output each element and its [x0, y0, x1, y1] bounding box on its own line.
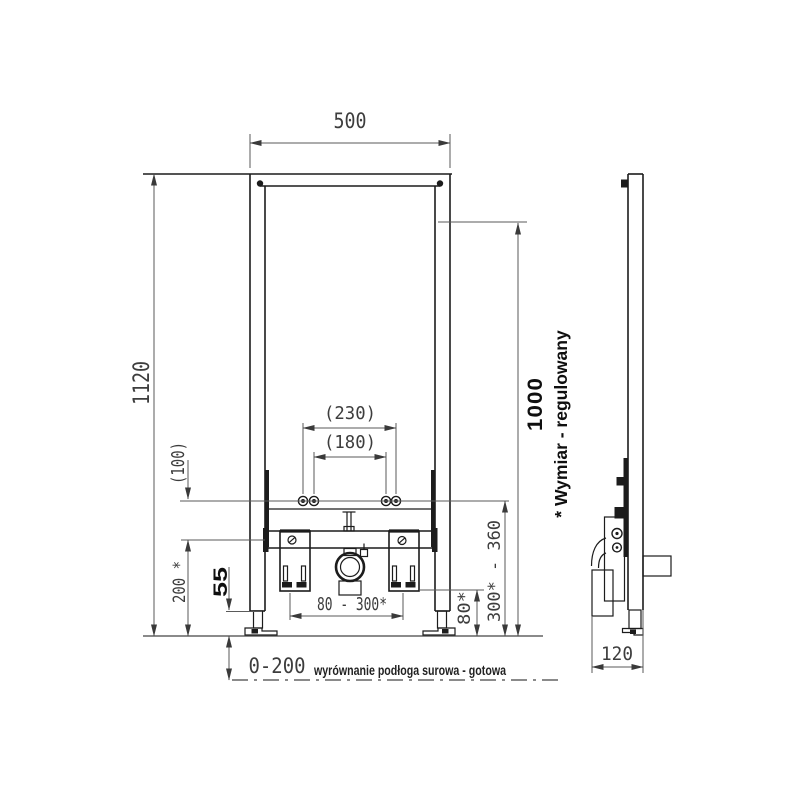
bracket-slot	[284, 566, 288, 581]
bidet-bracket-left	[280, 531, 310, 591]
hole-hatch	[399, 538, 405, 544]
side-foot-bolt	[630, 630, 636, 635]
dim-label-120: 120	[601, 643, 633, 665]
drain-outlet	[592, 570, 613, 616]
crossbar-assembly	[263, 512, 438, 552]
center-adjuster-rod	[343, 512, 356, 531]
dim-label-55: 55	[211, 566, 232, 597]
left-foot	[245, 611, 277, 635]
dim-label-200: 200 *	[170, 561, 189, 603]
technical-drawing-page: 500 1120 (230) (180) (100) 200 *	[0, 0, 800, 800]
left-foot-tube	[254, 611, 263, 628]
dim-label-100: (100)	[168, 442, 189, 484]
top-fixing-bolt-right	[437, 180, 443, 186]
bracket-slot	[393, 566, 397, 581]
side-plate-bolt-upper	[617, 477, 624, 486]
crossbar-hole-right	[398, 537, 406, 545]
clamp-bolt	[361, 550, 368, 557]
dim-height-1120: 1120	[130, 174, 155, 636]
adjustable-dimension-note: * Wymiar - regulowany	[551, 330, 571, 518]
dim-label-180: (180)	[324, 432, 376, 453]
left-foot-plate	[245, 628, 277, 635]
bracket-slot	[302, 566, 306, 581]
dimensions: 500 1120 (230) (180) (100) 200 *	[130, 109, 643, 680]
wall-support-bracket	[643, 556, 671, 576]
fixing-bolt-row	[265, 496, 435, 509]
dim-label-80: 80*	[455, 591, 475, 625]
bracket-foot	[297, 582, 307, 588]
dim-bolt-height-300-360: 300* - 360	[485, 501, 505, 636]
right-foot	[423, 611, 455, 635]
dim-depth-120: 120	[592, 610, 643, 673]
dim-bolt-spacing-180: (180)	[314, 432, 386, 494]
dim-label-0-200: 0-200	[249, 654, 306, 678]
right-foot-tube	[438, 611, 447, 628]
right-foot-bolt	[442, 629, 449, 634]
left-foot-bolt	[252, 629, 259, 634]
hole-hatch	[289, 537, 295, 543]
side-top-bolt	[621, 180, 629, 188]
crossbar-endcap-right	[432, 528, 438, 552]
top-fixing-bolt-left	[257, 180, 263, 186]
bracket-foot	[391, 582, 401, 588]
bracket-foot	[282, 582, 292, 588]
bracket-foot	[406, 582, 416, 588]
frame-outline	[143, 174, 452, 611]
dim-label-80-300: 80 - 300*	[317, 594, 387, 615]
dim-label-height-1120: 1120	[130, 361, 155, 405]
dim-label-300-360: 300* - 360	[485, 520, 505, 622]
floor-leveling-note: wyrównanie podłoga surowa - gotowa	[313, 663, 506, 678]
bidet-bracket-right	[389, 531, 419, 591]
side-foot-tube	[629, 610, 641, 629]
dim-floor-0-200: 0-200 wyrównanie podłoga surowa - gotowa	[229, 636, 506, 680]
dim-label-1000: 1000	[524, 377, 547, 431]
drain-pipe	[336, 544, 368, 596]
dim-bracket-80: 80*	[420, 590, 484, 636]
crossbar-hole-left	[288, 536, 296, 544]
bracket-slot	[411, 566, 415, 581]
installation-frame-drawing: 500 1120 (230) (180) (100) 200 *	[0, 0, 800, 800]
dim-label-width-500: 500	[334, 109, 367, 133]
dim-label-230: (230)	[324, 403, 376, 424]
connection-core	[616, 546, 619, 549]
connection-core	[615, 532, 618, 535]
drain-pipe-holder	[339, 581, 361, 595]
right-foot-plate	[423, 628, 455, 635]
side-water-connections	[612, 529, 622, 552]
side-view	[592, 174, 672, 635]
side-foot	[623, 610, 644, 635]
dim-crossbar-200: 200 *	[170, 540, 189, 636]
dim-bracket-range-80-300: 80 - 300*	[290, 593, 403, 620]
dim-foot-55: 55	[211, 566, 262, 611]
dim-width-500: 500	[250, 109, 450, 168]
